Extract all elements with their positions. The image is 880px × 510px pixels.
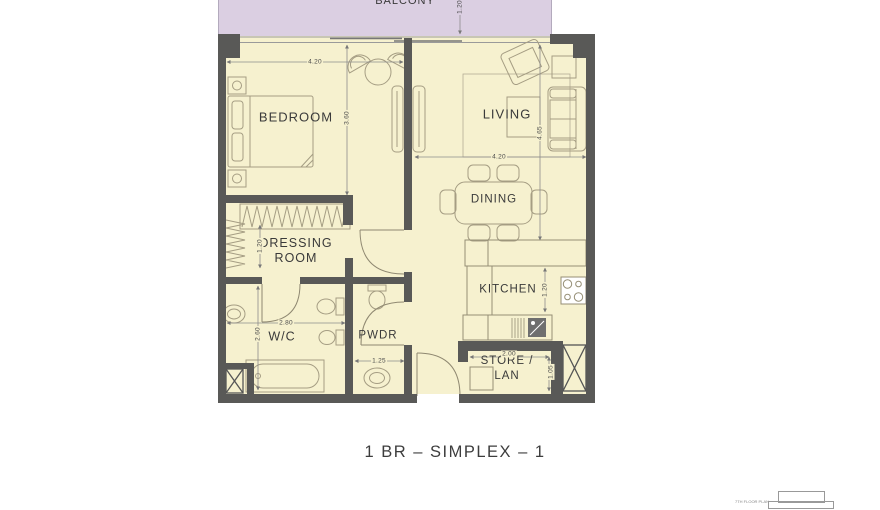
wall-store-left-stub [458,341,468,362]
dining-chair [468,165,490,181]
plan-title: 1 BR – SIMPLEX – 1 [364,443,545,462]
dim-living-width: 4.20 [491,154,507,161]
wardrobe-hatch-left [226,220,245,268]
wall-corner-top-left [218,34,240,58]
suite-door [360,230,404,274]
wardrobe-hatch-top [240,204,350,229]
wc-toilet [317,298,344,315]
sink-drainer [512,318,524,338]
shaft-right [563,345,586,391]
sofa [548,87,586,151]
wall-pwdr-top [353,277,404,284]
dim-living-depth: 4.65 [537,125,544,141]
side-table [552,56,576,78]
key-plan-lower-block [768,501,834,509]
dim-kitchen-depth: 1.20 [542,282,549,298]
wc-bidet [319,330,344,345]
kitchen-counter-top [465,240,586,266]
dining-chair [440,190,456,214]
key-plan: 7TH FLOOR PLAN [735,486,845,508]
pwdr-washbasin [364,368,390,388]
bedroom-label: BEDROOM [259,110,333,125]
bedroom-closet-unit [392,86,403,152]
pwdr-label: PWDR [358,329,397,344]
dining-label: DINING [471,193,517,208]
bed [228,96,313,167]
dim-store-width: 2.00 [501,351,517,358]
wall-right [586,34,595,403]
floor-plan-page: BALCONY BEDROOM LIVING DINING KITCHEN DR… [0,0,880,510]
shaft-left [226,369,243,393]
dim-bedroom-depth: 3.60 [344,110,351,126]
wc-washbasin [223,305,245,323]
kitchen-sink [528,318,546,337]
entrance-door [417,353,460,396]
wall-dressing-wc-left [222,277,262,284]
dining-chair [468,225,490,241]
dim-balcony-depth: 1.20 [457,0,464,15]
wall-bottom-left [218,394,417,403]
wall-entry [404,345,412,394]
wall-bottom-right [459,394,595,403]
floor-plan: BALCONY BEDROOM LIVING DINING KITCHEN DR… [218,0,595,403]
store-lan-label: STORE / LAN [481,354,534,384]
wall-bedroom-dressing [222,195,350,203]
kitchen-label: KITCHEN [479,283,536,298]
wall-left [218,34,226,403]
wall-store-top [458,341,558,351]
tv-unit [413,86,425,152]
balcony-label: BALCONY [375,0,435,7]
wall-shaft-left-side [247,363,254,394]
wall-dressing-nib [343,195,353,225]
living-label: LIVING [483,107,532,122]
balcony-window [240,37,550,43]
dim-wc-width: 2.80 [278,320,294,327]
wc-door [262,284,300,322]
dim-pwdr-width: 1.25 [371,358,387,365]
armchair [500,38,551,86]
wall-bedroom-living [404,38,412,230]
dining-chair [531,190,547,214]
dining-chair [497,165,519,181]
dim-wc-depth: 2.60 [255,326,262,342]
dim-dressing-depth: 1.20 [257,238,264,254]
dim-bedroom-width: 4.20 [307,59,323,66]
wall-wc-pwdr [345,277,353,394]
wall-hall-pwdr [404,272,412,302]
dining-chair [497,225,519,241]
nightstand [228,77,246,187]
key-plan-caption: 7TH FLOOR PLAN [735,499,769,504]
dim-store-depth: 1.05 [548,364,555,380]
stove [561,277,586,304]
round-table [365,59,391,85]
dressing-room-label: DRESSING ROOM [259,236,332,266]
wc-label: W/C [268,330,295,345]
